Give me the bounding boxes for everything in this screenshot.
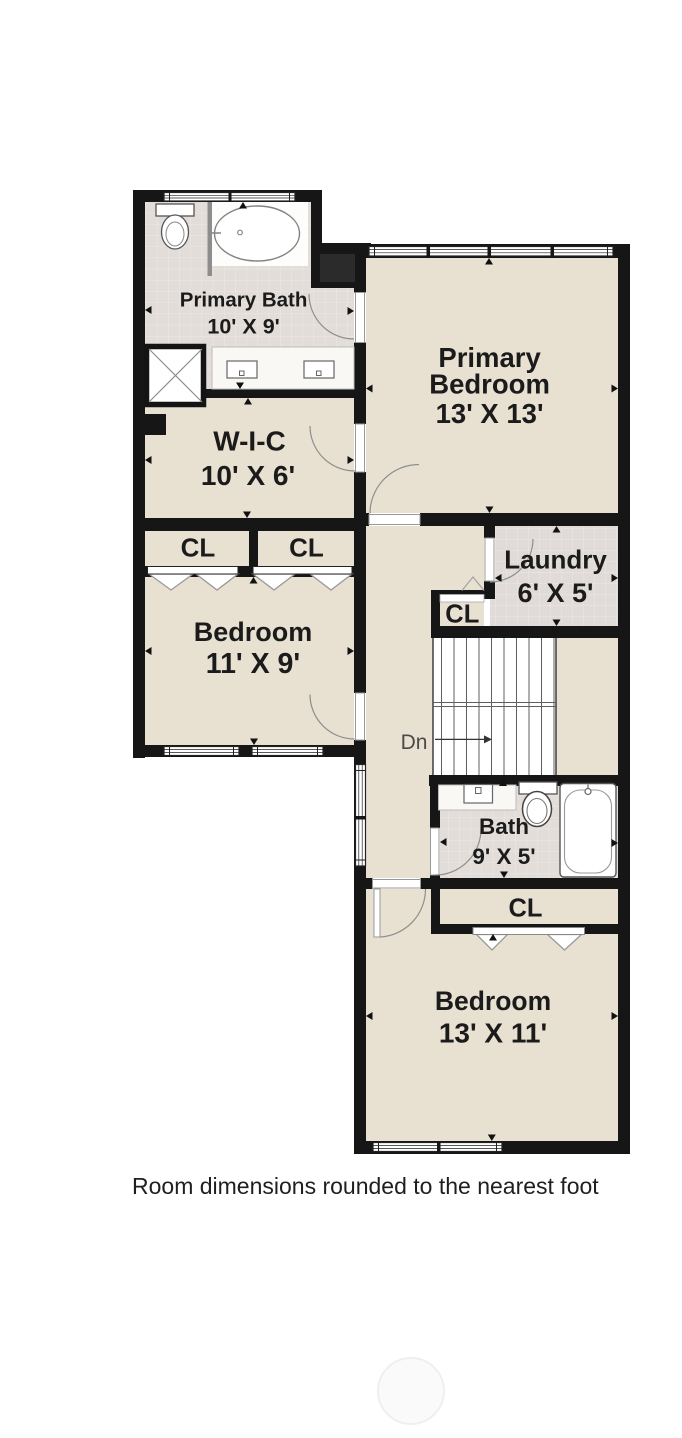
svg-text:9' X 5': 9' X 5' <box>472 844 535 869</box>
svg-text:CL: CL <box>289 533 324 563</box>
svg-text:13' X 13': 13' X 13' <box>436 398 544 429</box>
svg-text:10' X 6': 10' X 6' <box>201 460 295 491</box>
svg-text:6' X 5': 6' X 5' <box>518 578 594 608</box>
svg-text:CL: CL <box>181 533 216 563</box>
svg-text:11' X 9': 11' X 9' <box>206 648 300 680</box>
svg-text:Bath: Bath <box>479 814 529 839</box>
svg-text:CL: CL <box>445 601 479 629</box>
svg-text:10' X 9': 10' X 9' <box>207 314 279 338</box>
svg-text:Bedroom: Bedroom <box>429 369 550 400</box>
svg-text:Primary Bath: Primary Bath <box>180 289 308 312</box>
svg-text:13' X 11': 13' X 11' <box>439 1018 547 1049</box>
svg-text:Bedroom: Bedroom <box>435 986 551 1016</box>
svg-text:Room dimensions rounded to the: Room dimensions rounded to the nearest f… <box>132 1173 599 1199</box>
svg-text:CL: CL <box>509 895 543 923</box>
svg-text:Bedroom: Bedroom <box>194 617 313 647</box>
svg-text:Dn: Dn <box>401 731 428 754</box>
svg-text:Laundry: Laundry <box>504 545 607 575</box>
svg-text:W-I-C: W-I-C <box>213 425 286 456</box>
